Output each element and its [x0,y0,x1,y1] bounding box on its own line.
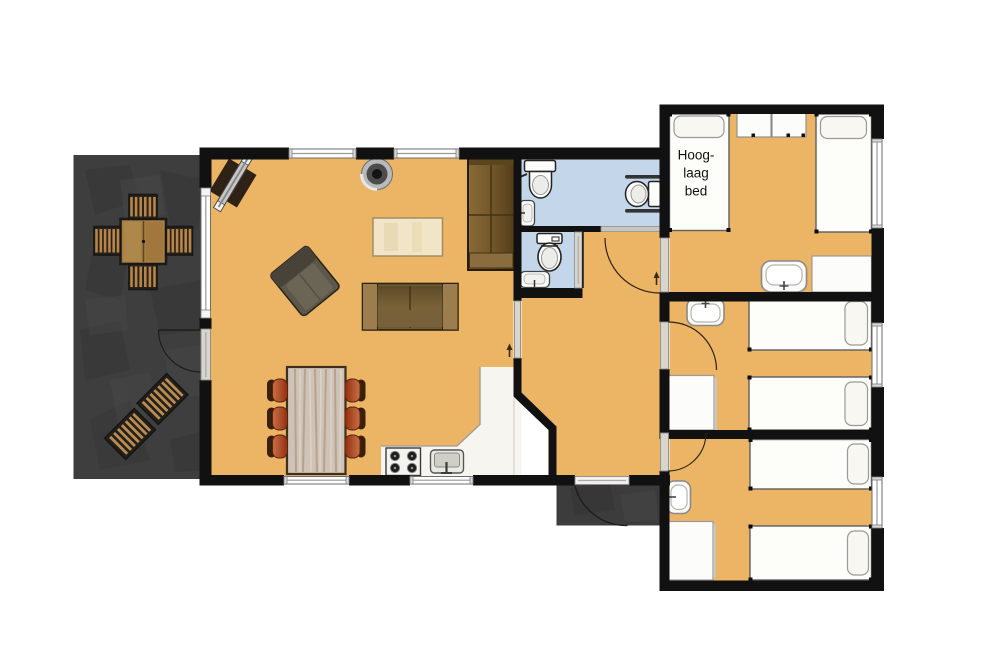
svg-text:Hoog-: Hoog- [678,148,715,163]
svg-text:bed: bed [685,184,708,199]
svg-text:laag: laag [683,166,709,181]
